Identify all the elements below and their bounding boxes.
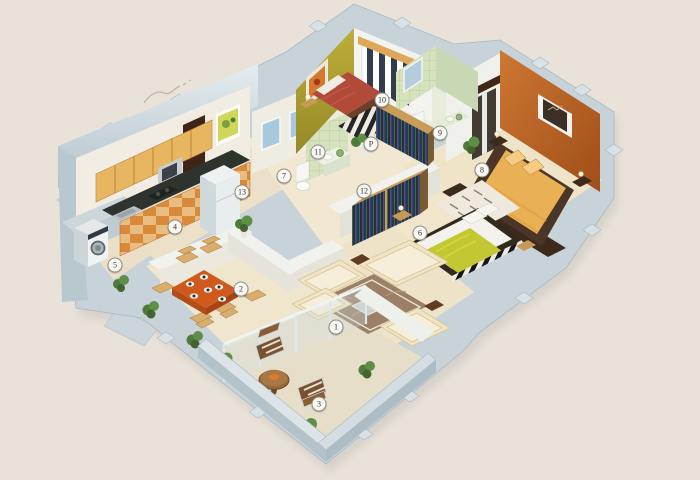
floor-plan-scene — [0, 0, 700, 480]
washing-machine — [74, 219, 108, 267]
floor-plan-render: 12345678910111213P — [0, 0, 700, 480]
toilet-wc — [296, 161, 310, 191]
refrigerator — [200, 165, 240, 236]
